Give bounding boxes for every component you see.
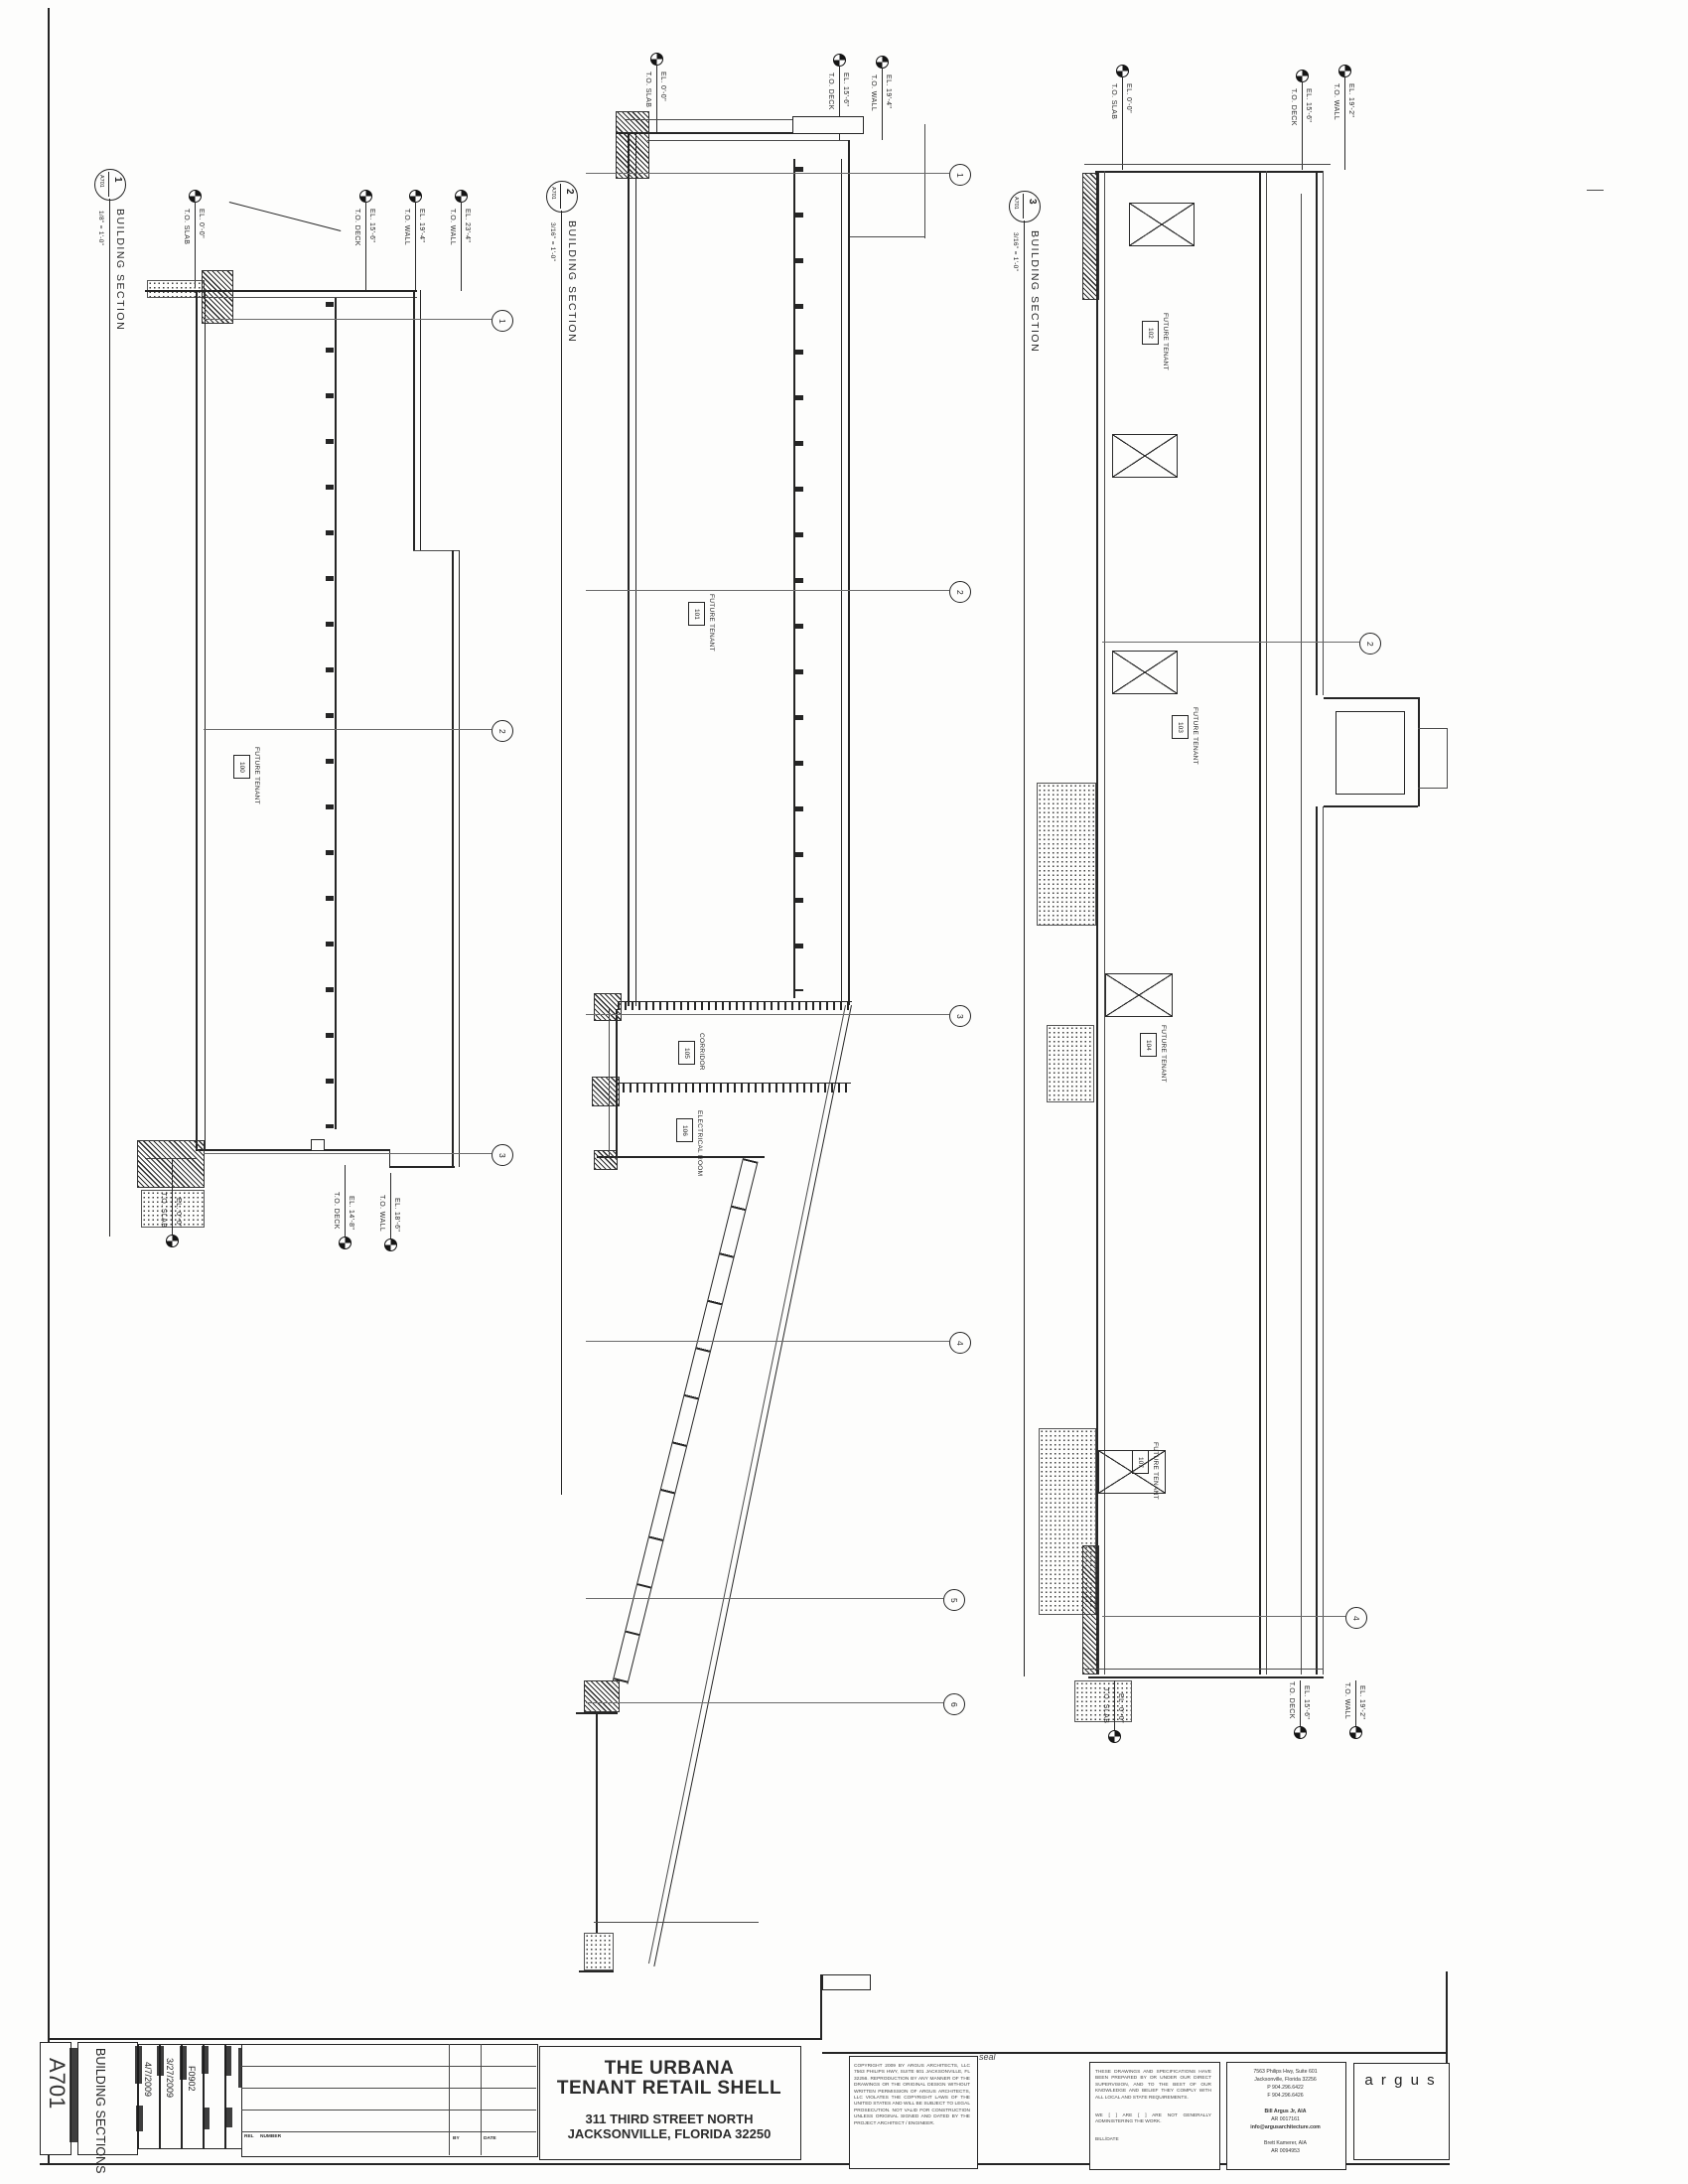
elevation-ref: T.O. WALL — [1343, 1682, 1350, 1719]
section-1-bubble-divider — [108, 172, 109, 197]
grid-leader — [586, 1014, 949, 1015]
room-number-box: 100 — [233, 755, 250, 779]
joist-ticks — [795, 167, 803, 991]
revision-rel-label: REL — [244, 2134, 254, 2139]
bottom-slab-line — [1088, 1676, 1324, 1678]
section-1-scale-text: 1/8" = 1'-0" — [97, 211, 104, 245]
roof-top-line — [1095, 171, 1324, 173]
room-number: 102 — [1147, 328, 1154, 339]
project-address-line2: JACKSONVILLE, FLORIDA 32250 — [539, 2126, 799, 2141]
elevation-ref: T.O. WALL — [403, 209, 410, 245]
drawing-sheet: 1 A701 BUILDING SECTION 1/8" = 1'-0" EL.… — [0, 0, 1688, 2184]
scan-smudge — [70, 2048, 77, 2142]
revision-number-label: NUMBER — [260, 2134, 281, 2139]
tower-side-line — [1418, 697, 1420, 806]
end-wall-line — [1096, 171, 1098, 1674]
wall-line — [1301, 194, 1302, 1674]
grid-leader — [586, 173, 949, 174]
room-number-box: 104 — [1140, 1033, 1157, 1057]
section-3-title-line — [1024, 220, 1025, 1676]
parapet-cap-line — [1084, 164, 1331, 165]
sheet-number: A701 — [44, 2058, 70, 2109]
grid-bubble: 2 — [1359, 633, 1381, 655]
revision-col-line — [481, 2044, 482, 2155]
grid-bubble: 3 — [949, 1005, 971, 1027]
roof-edge-line — [196, 290, 198, 1150]
parapet-cap-line — [626, 119, 794, 120]
louver-opening — [1112, 434, 1178, 478]
room-number-box: 107 — [1132, 1450, 1149, 1474]
elevation-ref: T.O. SLAB — [183, 209, 190, 244]
room-number-box: 106 — [676, 1118, 693, 1142]
room-number: 105 — [683, 1048, 690, 1059]
room-number: 104 — [1145, 1040, 1152, 1051]
wall-stub-fill — [594, 993, 622, 1021]
leader-line — [1122, 76, 1123, 170]
elevation-ref: T.O. DECK — [333, 1192, 340, 1230]
elevation-value: EL. 0'-0" — [198, 209, 205, 238]
elevation-ref: T.O. DECK — [827, 73, 834, 110]
slab-line — [145, 290, 417, 292]
wall-line-inner — [420, 290, 421, 550]
room-name: FUTURE TENANT — [1159, 1025, 1168, 1075]
leader-line — [1355, 1680, 1356, 1726]
leader-line — [1302, 81, 1303, 170]
leader-line — [415, 202, 416, 291]
elevation-ref: T.O. WALL — [449, 209, 456, 245]
benchmark-target-icon — [1296, 70, 1309, 82]
elevation-ref: T.O. DECK — [1288, 1681, 1295, 1719]
slab-step — [389, 1149, 390, 1166]
benchmark-target-icon — [1349, 1726, 1362, 1739]
grade-line — [594, 1922, 759, 1923]
roof-beyond-line — [1316, 171, 1318, 695]
sloped-roof-ladder — [613, 1158, 759, 1684]
benchmark-target-icon — [409, 190, 422, 203]
elevation-value: EL. 15'-6" — [368, 209, 375, 242]
roof-edge-line-inner — [205, 290, 206, 1150]
elevation-value: EL. 0'-0" — [1117, 1693, 1124, 1723]
grid-leader — [586, 590, 949, 591]
grid-leader — [204, 1153, 492, 1154]
grid-number: 6 — [949, 1702, 959, 1707]
grid-leader — [204, 729, 492, 730]
benchmark-target-icon — [876, 56, 889, 69]
room-number: 106 — [681, 1125, 688, 1136]
section-3-number: 3 — [1027, 199, 1038, 205]
joist-ticks — [326, 302, 334, 1128]
seal-label: seal — [979, 2052, 996, 2062]
grid-leader — [1102, 642, 1359, 643]
benchmark-target-icon — [384, 1238, 397, 1251]
project-address-line1: 311 THIRD STREET NORTH — [539, 2111, 799, 2126]
strip-notch-box — [822, 1974, 871, 1990]
room-number-box: 102 — [1142, 321, 1159, 345]
footing-concrete-fill — [141, 1190, 205, 1228]
end-wall-line-inner — [1104, 171, 1105, 1674]
wall-line — [452, 550, 454, 1167]
elevation-value: EL. 0'-0" — [175, 1198, 182, 1228]
tower-top-line — [1324, 697, 1418, 699]
concrete-pier-fill — [1037, 783, 1096, 926]
grid-number: 2 — [497, 729, 507, 734]
section-1-title-line — [109, 199, 110, 1237]
louver-opening — [1129, 203, 1195, 246]
grid-number: 2 — [1365, 642, 1375, 647]
benchmark-target-icon — [1108, 1730, 1121, 1743]
leader-line — [656, 65, 657, 132]
room-number: 107 — [1137, 1457, 1144, 1468]
roof-beyond-line-inner — [1323, 806, 1324, 1674]
bottom-slab-step-line — [389, 1166, 455, 1168]
sheet-title-box — [77, 2042, 138, 2155]
date-1: 4/7/2009 — [143, 2062, 153, 2097]
firm-phone: P 904.296.6422 — [1228, 2084, 1342, 2092]
grid-bubble: 5 — [943, 1589, 965, 1611]
wall-line-inner — [841, 159, 842, 1005]
room-name: FUTURE TENANT — [252, 747, 261, 797]
section-2-scale-text: 3/16" = 1'-0" — [549, 222, 556, 261]
grid-number: 3 — [955, 1014, 965, 1019]
leader-line — [461, 202, 462, 291]
room-number: 103 — [1177, 722, 1184, 733]
wall-beyond-step — [849, 236, 924, 237]
roof-beyond-diagonal-inner — [648, 1005, 846, 1964]
room-name: FUTURE TENANT — [1161, 313, 1170, 363]
elevation-ref: T.O. DECK — [1290, 88, 1297, 126]
grid-leader — [1102, 1616, 1345, 1617]
scan-smudge — [180, 2046, 187, 2080]
tower-ext-line — [1418, 728, 1448, 729]
grid-number: 1 — [955, 173, 965, 178]
grid-leader — [586, 1598, 943, 1599]
slab-line-inner — [205, 297, 417, 298]
room-name: FUTURE TENANT — [1151, 1442, 1160, 1492]
architect2-registration: AR 0094953 — [1228, 2147, 1342, 2155]
elevation-value: EL. 15'-6" — [1305, 88, 1312, 122]
elevation-value: EL. 0'-0" — [659, 72, 666, 101]
scan-smudge — [224, 2046, 231, 2076]
diagonal-leader — [229, 202, 342, 231]
grade-line — [1084, 1669, 1324, 1670]
room-name: CORRIDOR — [697, 1033, 706, 1096]
elevation-ref: T.O. SLAB — [1110, 83, 1117, 119]
revision-col-line — [449, 2044, 450, 2155]
room-number-box: 105 — [678, 1041, 695, 1065]
strip-top-line-left — [48, 2038, 822, 2040]
leader-line — [172, 1159, 173, 1235]
firm-logo-text: a r g u s — [1353, 2072, 1448, 2089]
grid-bubble: 4 — [949, 1332, 971, 1354]
sheet-title: BUILDING SECTIONS — [92, 2048, 107, 2151]
project-name-line1: THE URBANA — [539, 2058, 799, 2080]
strip-top-line-right — [822, 2052, 1448, 2054]
revision-date-label: DATE — [484, 2136, 496, 2141]
elevation-value: EL. 19'-4" — [885, 74, 892, 108]
grid-number: 4 — [1351, 1616, 1361, 1621]
grid-leader — [204, 319, 492, 320]
electrical-deck-band — [616, 1083, 851, 1092]
grid-bubble: 1 — [492, 310, 513, 332]
section-1-sheet-ref: A701 — [98, 175, 104, 188]
benchmark-target-icon — [1294, 1726, 1307, 1739]
scan-artifact-tick — [1587, 190, 1604, 191]
section-2-title-line — [561, 211, 562, 1495]
room-number-box: 103 — [1172, 715, 1189, 739]
beam-pocket — [792, 116, 864, 134]
footing-line — [579, 1970, 614, 1972]
wall-line — [628, 132, 630, 1006]
certification-p1: THESE DRAWINGS AND SPECIFICATIONS HAVE B… — [1095, 2070, 1211, 2102]
certification-p2: WE [ ] ARE [ ] ARE NOT GENERALLY ADMINIS… — [1095, 2113, 1211, 2126]
leader-line — [390, 1173, 391, 1238]
corridor-wall-line-inner — [609, 1009, 610, 1156]
elevation-value: EL. 14'-8" — [348, 1196, 354, 1230]
revision-row-line — [241, 2066, 536, 2067]
elevation-value: EL. 0'-0" — [1125, 83, 1132, 113]
revision-row-line — [241, 2131, 536, 2132]
elevation-ref: T.O. WALL — [870, 74, 877, 111]
wall-stub-fill — [594, 1150, 618, 1170]
wall-beyond-line — [924, 124, 925, 238]
architect1-name: Bill Argus Jr, AIA — [1228, 2108, 1342, 2115]
roof-cap-line-inner — [647, 140, 849, 141]
project-name-line2: TENANT RETAIL SHELL — [539, 2078, 799, 2100]
revision-row-line — [241, 2088, 536, 2089]
masonry-wall-fill — [1082, 1545, 1099, 1674]
column-line — [596, 1712, 598, 1933]
scan-smudge — [157, 2046, 164, 2076]
sheet-border-right — [1446, 1971, 1448, 2064]
wall-line — [848, 140, 850, 1005]
tower-ext-side — [1447, 728, 1448, 789]
scan-smudge — [202, 2046, 209, 2074]
leader-line — [345, 1165, 346, 1237]
grid-number: 4 — [955, 1341, 965, 1346]
scan-smudge — [203, 2108, 210, 2129]
section-3-scale-text: 3/16" = 1'-0" — [1012, 232, 1019, 271]
architect1-registration: AR 0017161 — [1228, 2115, 1342, 2123]
elevation-value: EL. 19'-2" — [1347, 83, 1354, 117]
floor-line — [597, 1156, 765, 1158]
leader-line — [1344, 76, 1345, 170]
wall-line-inner — [459, 550, 460, 1167]
section-3-bubble-divider — [1023, 194, 1024, 218]
elevation-ref: T.O. WALL — [378, 1195, 385, 1232]
corridor-deck-band — [618, 1001, 852, 1010]
room-name: FUTURE TENANT — [1191, 707, 1199, 757]
benchmark-target-icon — [833, 54, 846, 67]
storefront-line — [1259, 171, 1261, 1674]
leader-line — [195, 202, 196, 287]
roof-beyond-line — [1316, 806, 1318, 1674]
deck-line — [335, 298, 337, 1129]
date-2: 3/27/2009 — [165, 2058, 175, 2098]
elevation-value: EL. 15'-6" — [842, 73, 849, 106]
grid-number: 5 — [949, 1598, 959, 1603]
section-1-number: 1 — [112, 177, 123, 183]
louver-opening — [1112, 651, 1178, 694]
grid-bubble: 2 — [949, 581, 971, 603]
grid-leader — [586, 1341, 949, 1342]
elevation-ref: T.O. WALL — [1333, 83, 1339, 120]
concrete-pier-fill — [1047, 1025, 1094, 1102]
elevation-value: EL. 15'-6" — [1303, 1685, 1310, 1719]
grid-bubble: 6 — [943, 1693, 965, 1715]
tower-inner-box — [1336, 711, 1405, 795]
scan-smudge — [135, 2046, 142, 2084]
leader-line — [1300, 1680, 1301, 1726]
louver-opening — [1105, 973, 1173, 1017]
grid-number: 1 — [497, 319, 507, 324]
benchmark-target-icon — [166, 1235, 179, 1247]
grid-bubble: 4 — [1345, 1607, 1367, 1629]
certification-p3: BILL/DATE — [1095, 2137, 1211, 2143]
roof-beyond-diagonal — [653, 1005, 852, 1966]
slab-notch — [311, 1139, 325, 1151]
benchmark-target-icon — [1116, 65, 1129, 77]
revision-row-line — [241, 2110, 536, 2111]
room-number-box: 101 — [688, 602, 705, 626]
architect2-name: Brett Kamerer, AIA — [1228, 2139, 1342, 2147]
elevation-ref: T.O. SLAB — [644, 72, 651, 107]
section-3-title-text: BUILDING SECTION — [1029, 230, 1041, 353]
footing-concrete-fill — [584, 1933, 614, 1970]
leader-line — [882, 68, 883, 140]
section-3-sheet-ref: A701 — [1013, 197, 1019, 210]
elevation-value: EL. 18'-6" — [393, 1198, 400, 1232]
project-number: F0902 — [187, 2066, 197, 2092]
elevation-value: EL. 23'-4" — [464, 209, 471, 242]
grid-bubble: 2 — [492, 720, 513, 742]
sheet-border-left — [48, 8, 50, 2163]
section-2-bubble-divider — [560, 184, 561, 209]
firm-fax: F 904.296.6426 — [1228, 2092, 1342, 2100]
room-name: FUTURE TENANT — [707, 594, 716, 644]
benchmark-target-icon — [339, 1237, 352, 1249]
wall-line — [413, 290, 415, 550]
grid-number: 2 — [955, 590, 965, 595]
section-2-number: 2 — [564, 189, 575, 195]
elevation-value: EL. 19'-4" — [418, 209, 425, 242]
roof-beyond-line-inner — [1323, 171, 1324, 695]
leader-line — [1114, 1680, 1115, 1730]
elevation-ref: T.O. DECK — [353, 209, 360, 246]
benchmark-target-icon — [189, 190, 202, 203]
revision-by-label: BY — [453, 2136, 460, 2141]
elevation-value: EL. 19'-2" — [1358, 1685, 1365, 1719]
storefront-line-inner — [1266, 171, 1267, 1674]
parapet-fill — [616, 111, 649, 179]
benchmark-target-icon — [359, 190, 372, 203]
firm-address-line2: Jacksonville, Florida 32256 — [1228, 2076, 1342, 2084]
bottom-slab-line — [196, 1149, 390, 1151]
corridor-wall-line — [616, 1009, 618, 1156]
firm-email: info@argusarchitecture.com — [1228, 2123, 1342, 2131]
section-2-sheet-ref: A701 — [550, 187, 556, 200]
section-2-title-text: BUILDING SECTION — [566, 220, 578, 343]
room-name: ELECTRICAL ROOM — [695, 1110, 704, 1192]
grid-bubble: 1 — [949, 164, 971, 186]
firm-address-line1: 7563 Philips Hwy, Suite 601 — [1228, 2068, 1342, 2076]
tower-ext-line — [1418, 788, 1448, 789]
grid-number: 3 — [497, 1153, 507, 1158]
scan-smudge — [136, 2106, 143, 2131]
benchmark-target-icon — [650, 53, 663, 66]
room-number: 100 — [238, 762, 245, 773]
elevation-ref: T.O. SLAB — [160, 1192, 167, 1228]
wall-line-inner — [635, 132, 636, 1006]
copyright-text: COPYRIGHT 2009 BY ARGUS ARCHITECTS, LLC … — [854, 2064, 970, 2127]
tower-bottom-line — [1324, 805, 1418, 807]
benchmark-target-icon — [455, 190, 468, 203]
section-1-title-text: BUILDING SECTION — [114, 209, 126, 331]
room-number: 101 — [693, 609, 700, 620]
scan-smudge — [225, 2108, 232, 2127]
grid-leader — [586, 1702, 943, 1703]
deck-line — [793, 159, 795, 998]
benchmark-target-icon — [1338, 65, 1351, 77]
ramp-end-fill — [584, 1680, 620, 1712]
leader-line — [365, 202, 366, 291]
grid-bubble: 3 — [492, 1144, 513, 1166]
elevation-ref: T.O. SLAB — [1102, 1687, 1109, 1723]
